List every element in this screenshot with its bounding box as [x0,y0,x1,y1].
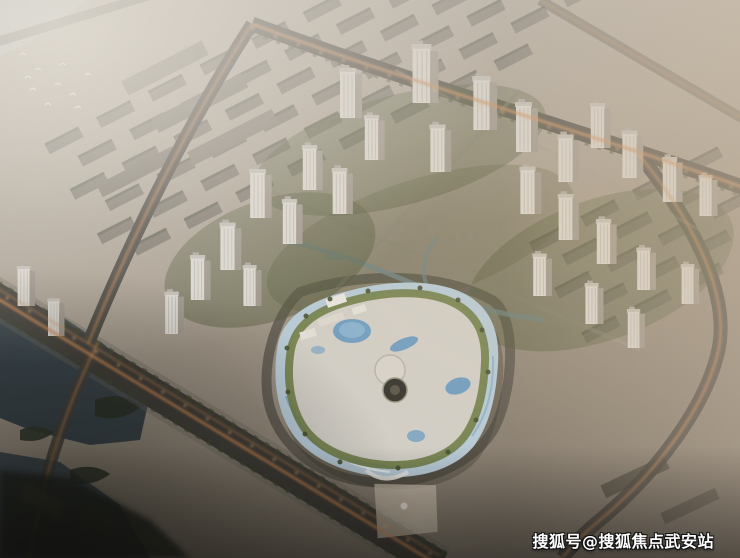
aerial-rendering: 搜狐号@搜狐焦点武安站 [0,0,740,558]
watermark-sohu: 搜狐号@搜狐焦点武安站 [532,528,714,552]
rendering-scene [0,0,740,558]
haze-overlays [0,0,740,558]
